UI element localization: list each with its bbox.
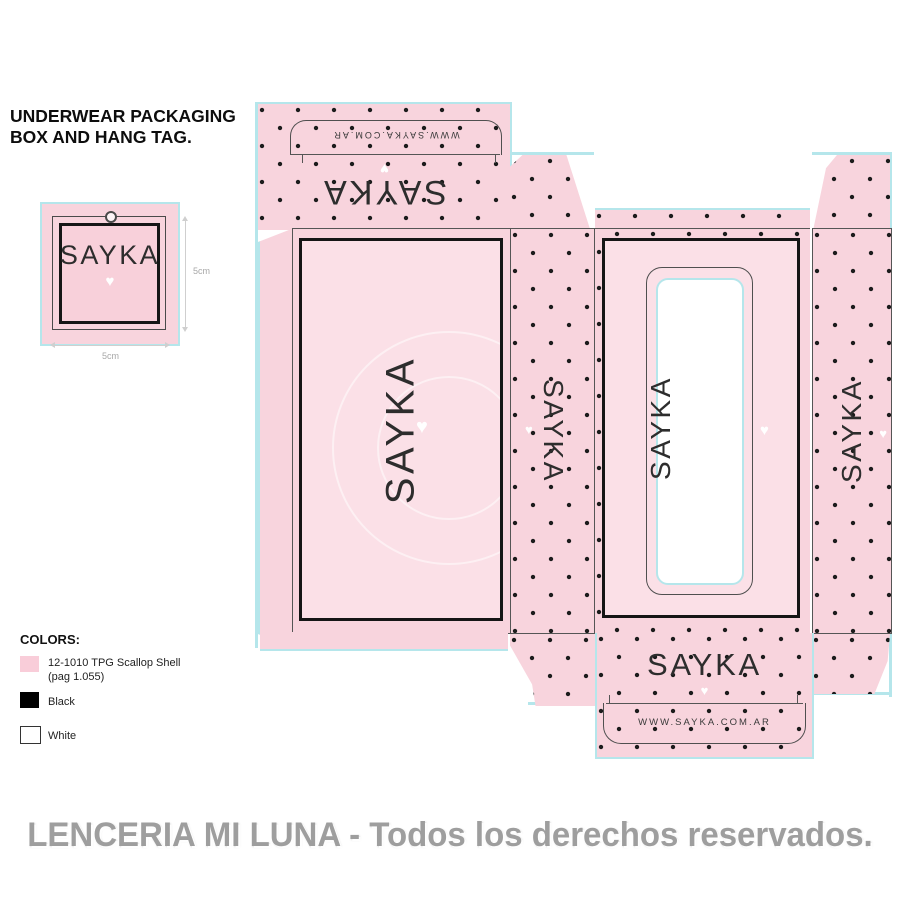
hang-tag: SAYKA ♥ [40,202,180,346]
front-panel: SAYKA ♥ [292,228,511,634]
dust-flap-bottom-right [812,634,890,694]
back-panel: SAYKA ♥ [595,208,810,636]
dust-flap-top-right [812,155,890,228]
swatch-white [20,726,41,744]
glue-flap [258,228,294,648]
hang-tag-brand: SAYKA [42,240,178,271]
lid-section: WWW.SAYKA.COM.AR ♥ SAYKA [258,102,512,230]
back-fold-line [595,228,810,229]
dim-label-width: 5cm [102,351,119,361]
side-brand: SAYKA [836,379,868,483]
heart-icon: ♥ [879,427,887,440]
dim-label-height: 5cm [193,266,210,276]
side-brand: SAYKA [537,379,569,483]
bottom-url-text: WWW.SAYKA.COM.AR [604,717,805,728]
dust-flap-top-left [510,155,593,228]
bottom-tuck-flap: WWW.SAYKA.COM.AR [603,703,806,744]
heart-icon: ♥ [525,423,533,436]
hole-punch-icon [105,211,117,223]
die-cut-edge-dust-tr [812,152,890,155]
heart-icon: ♥ [42,274,178,289]
die-cut-edge-dust-tl [510,152,594,155]
heart-icon: ♥ [760,423,769,438]
lid-fold-line [290,154,500,155]
dim-line-width [52,345,168,346]
page-title-line2: BOX AND HANG TAG. [10,127,236,148]
front-bottom-glue-strip [260,632,508,651]
page-title-line1: UNDERWEAR PACKAGING [10,106,236,127]
page-title: UNDERWEAR PACKAGING BOX AND HANG TAG. [10,106,236,148]
legend-heading: COLORS: [20,632,80,647]
lid-tuck-flap: WWW.SAYKA.COM.AR [290,120,502,155]
legend-item-label: Black [48,695,75,709]
lid-brand: SAYKA [258,172,510,211]
side-strip-right: SAYKA ♥ [812,228,892,634]
back-panel-frame: SAYKA ♥ [602,238,800,618]
heart-icon: ♥ [416,417,428,437]
swatch-scallop-shell [20,656,39,672]
dust-flap-bottom-left [510,634,595,706]
copyright-watermark: LENCERIA MI LUNA - Todos los derechos re… [14,816,887,855]
side-strip-middle: SAYKA ♥ [510,228,595,634]
bottom-flap-section: SAYKA ♥ WWW.SAYKA.COM.AR [595,633,814,759]
swatch-black [20,692,39,708]
dim-line-height [185,218,186,330]
lid-url-text: WWW.SAYKA.COM.AR [291,130,501,140]
legend-item-label: White [48,729,76,743]
front-panel-frame: SAYKA ♥ [299,238,503,621]
bottom-flap-brand: SAYKA [597,647,812,683]
back-brand: SAYKA [645,376,677,480]
heart-icon: ♥ [597,684,812,697]
legend-item-label: 12-1010 TPG Scallop Shell (pag 1.055) [48,656,181,684]
